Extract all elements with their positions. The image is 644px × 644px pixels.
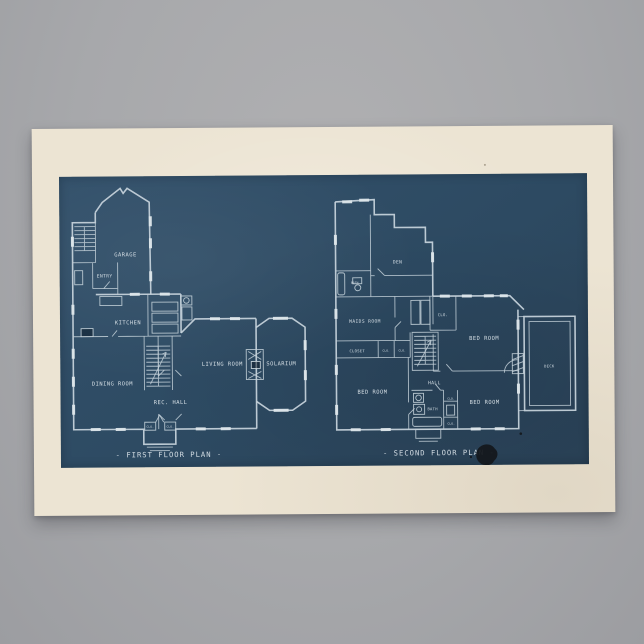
first-floor-plan: GARAGE ENTRY KITCHEN DINING ROOM REC. HA… [72,187,306,460]
room-label-closet: CLOSET [349,348,365,353]
room-label-front-clo-right: CLO. [167,425,175,429]
rear-stoop [416,429,441,438]
first-floor-windows [72,215,305,430]
room-label-den: DEN [393,259,403,265]
room-label-clo-upper: CLO. [438,312,448,317]
fireplace-hearth [251,361,260,368]
powder-room-fixture [75,271,83,285]
bath-sink-basin [417,407,422,412]
pantry-shelf [152,302,178,311]
room-label-rec-hall: REC. HALL [154,400,188,406]
pantry-shelf [152,324,178,333]
first-floor-back-stairs [74,227,95,251]
upper-bath-toilet [355,285,361,291]
upper-bath-tub [338,273,345,295]
room-label-bed-room-se: BED ROOM [470,400,500,406]
poster-paper: GARAGE ENTRY KITCHEN DINING ROOM REC. HA… [32,125,616,516]
boiler-box [100,296,122,305]
sink-basin [184,298,190,304]
first-floor-exterior-walls [72,187,306,445]
paper-speck [484,164,486,166]
room-label-bath-upper: BATH [351,281,359,285]
room-label-deck: DECK [544,363,555,368]
room-label-front-clo-left: CLO. [147,425,155,429]
room-label-clo-a: CLO. [383,349,391,353]
plan-title-first: - FIRST FLOOR PLAN - [116,450,223,460]
first-floor-main-stairs [146,346,170,386]
water-closet-fixture [447,405,455,415]
room-label-dining-room: DINING ROOM [92,381,133,387]
ink-stain [470,432,523,467]
refrigerator-box [81,329,93,337]
room-label-living-room: LIVING ROOM [202,362,243,368]
room-label-entry: ENTRY [97,273,113,279]
room-label-hall: HALL [428,380,441,386]
linen-cabinet [421,300,430,324]
room-label-bed-room-ne: BED ROOM [469,336,499,342]
gray-backdrop: GARAGE ENTRY KITCHEN DINING ROOM REC. HA… [0,0,644,644]
room-label-bed-room-w: BED ROOM [358,390,388,396]
bath-toilet [416,395,422,401]
blueprint-panel: GARAGE ENTRY KITCHEN DINING ROOM REC. HA… [59,173,589,468]
blueprint-drawing: GARAGE ENTRY KITCHEN DINING ROOM REC. HA… [59,173,589,468]
bath-sink [414,404,425,414]
second-floor-stairs [412,332,438,370]
room-label-clo-c: CLO. [447,397,455,401]
second-floor-plan: DEN BATH MAIDS ROOM CLO. CLOSET CLO. CLO… [335,198,576,458]
linen-cabinet [411,300,420,324]
room-label-solarium: SOLARIUM [266,361,296,367]
room-label-clo-b: CLO. [399,348,407,352]
pantry-shelf [152,313,178,322]
room-label-maids-room: MAIDS ROOM [349,319,381,325]
room-label-clo-d: CLO. [448,422,456,426]
kitchen-counter [182,307,192,320]
room-label-garage: GARAGE [114,252,137,258]
bath-tub [413,417,442,426]
room-label-kitchen: KITCHEN [115,320,141,326]
room-label-bath: BATH [427,406,438,411]
